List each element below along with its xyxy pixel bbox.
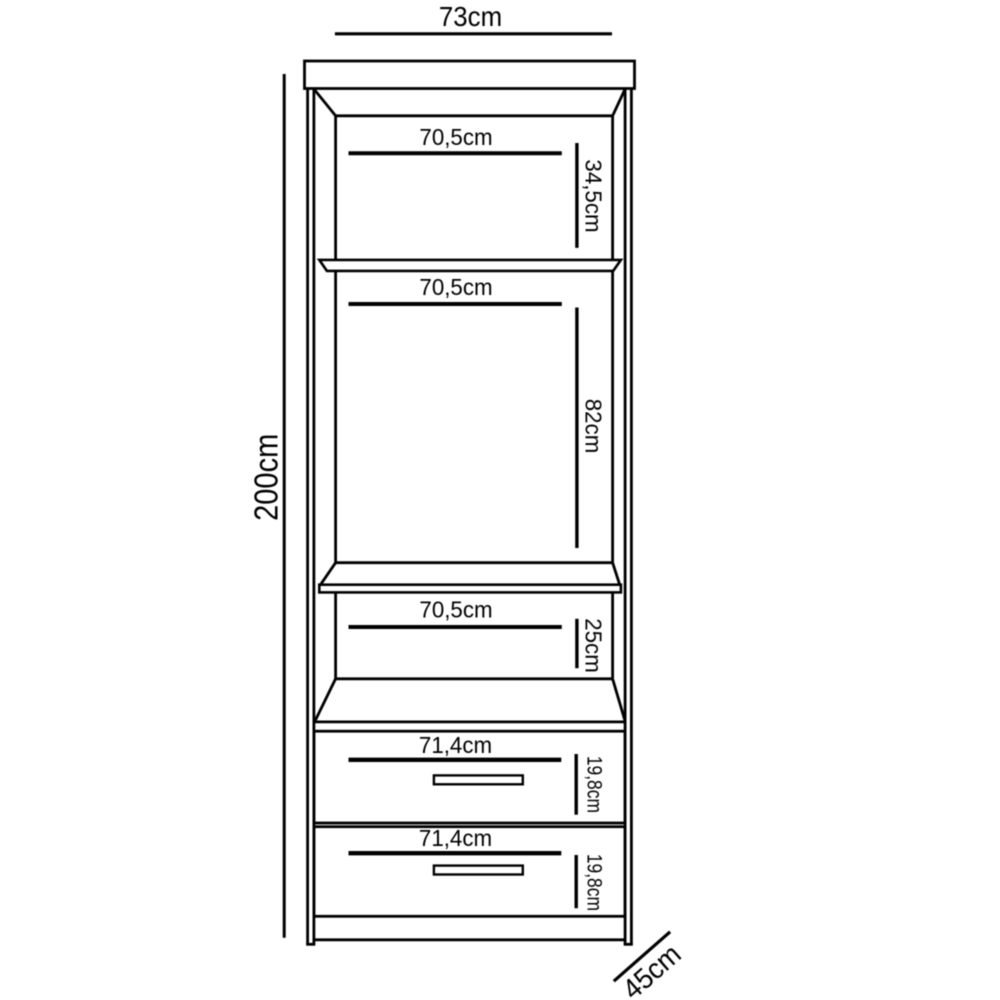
svg-text:25cm: 25cm <box>580 618 607 673</box>
svg-text:19,8cm: 19,8cm <box>582 854 605 911</box>
svg-text:73cm: 73cm <box>439 1 502 32</box>
svg-text:34,5cm: 34,5cm <box>580 159 607 232</box>
svg-text:71,4cm: 71,4cm <box>419 731 492 758</box>
svg-text:70,5cm: 70,5cm <box>419 123 492 150</box>
svg-text:71,4cm: 71,4cm <box>419 824 492 851</box>
svg-text:70,5cm: 70,5cm <box>419 596 492 623</box>
svg-text:70,5cm: 70,5cm <box>419 273 492 300</box>
svg-text:19,8cm: 19,8cm <box>582 756 605 813</box>
svg-text:200cm: 200cm <box>248 434 285 521</box>
svg-text:82cm: 82cm <box>580 399 607 454</box>
